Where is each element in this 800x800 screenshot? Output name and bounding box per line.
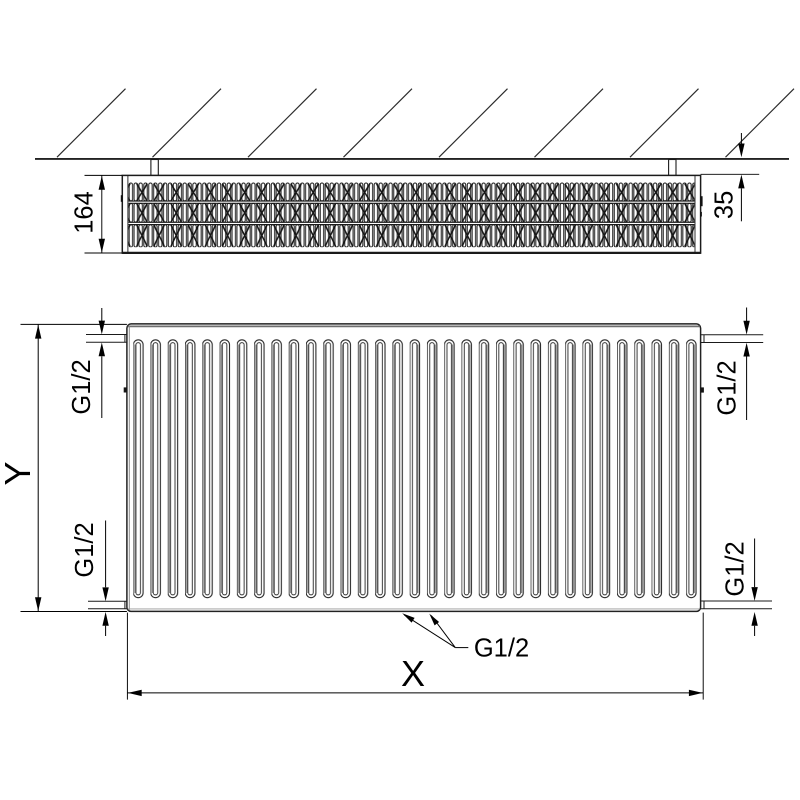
svg-text:G1/2: G1/2 (722, 541, 750, 596)
svg-text:G1/2: G1/2 (68, 359, 96, 414)
svg-text:X: X (401, 653, 425, 694)
svg-text:G1/2: G1/2 (71, 522, 99, 577)
svg-text:G1/2: G1/2 (714, 360, 742, 415)
svg-text:164: 164 (71, 191, 99, 234)
svg-text:G1/2: G1/2 (474, 635, 529, 663)
svg-text:Y: Y (0, 461, 38, 485)
svg-text:35: 35 (711, 191, 739, 219)
